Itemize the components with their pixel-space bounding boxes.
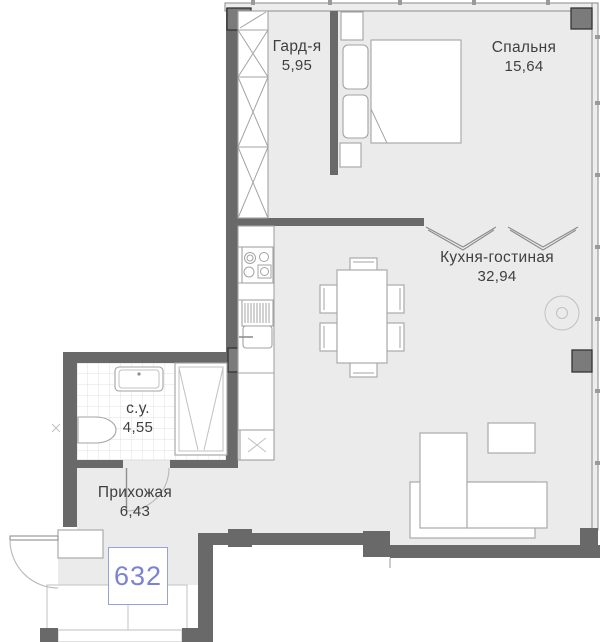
column-northeast [571,8,592,29]
room-area: 5,95 [273,56,322,75]
closet-body [238,11,268,218]
corridor-wall-strip [58,630,182,642]
top-window-band [225,3,598,11]
nightstand-bottom [340,143,361,167]
bathroom-south-wall-left [63,460,123,468]
pillow-2 [343,95,368,138]
bathroom-doorway-floor [123,460,170,468]
chair-bottom [350,362,377,377]
sofa-chaise [420,433,467,528]
room-area: 15,64 [492,57,556,76]
partition-gap-floor [421,218,592,226]
wardrobe-doorway-floor [330,175,338,218]
room-name: Кухня-гостиная [440,248,554,267]
corridor-wall-block-right [182,628,213,642]
south-wall [390,545,600,558]
room-name: Спальня [492,38,556,57]
bedroom-wardrobe-wall [330,11,338,175]
chair-right-1 [387,285,404,313]
chair-right-2 [387,323,404,351]
southeast-corner-block [580,528,598,546]
room-area: 6,43 [98,502,172,521]
west-wall [226,8,238,468]
right-window-band [592,3,598,530]
nightstand-top [341,12,363,40]
toilet [78,417,116,443]
column-east [572,350,592,372]
bathtub [175,363,227,455]
bathroom-south-wall-right [170,460,238,468]
room-area: 4,55 [123,418,153,437]
unit-number-badge: 632 [108,547,168,605]
washbasin [115,367,163,391]
unit-number: 632 [114,561,162,592]
sofa-seat [467,482,547,528]
room-name: Прихожая [98,483,172,502]
room-area: 32,94 [440,267,554,286]
room-label-hallway: Прихожая 6,43 [98,483,172,521]
room-label-kitchen-living: Кухня-гостиная 32,94 [440,248,554,286]
floor-plan-unit: Гард-я 5,95 Спальня 15,64 Кухня-гостиная… [0,0,600,642]
entry-cabinet [58,530,103,558]
chair-left-2 [320,323,337,351]
entry-door-frame-block [228,529,252,547]
room-label-bedroom: Спальня 15,64 [492,38,556,76]
bathroom-west-wall [63,363,77,527]
appliance-slot [240,430,274,460]
room-label-bathroom: с.у. 4,55 [123,399,153,437]
entry-door-swing-arc [10,540,58,588]
wardrobe-closet [238,11,268,218]
entry-south-wall [198,533,363,545]
shaft-x-mark [52,424,60,432]
kitchen-sink [239,300,273,348]
bed-blanket [371,40,461,143]
entry-east-wall [198,533,213,642]
stove [242,247,273,283]
room-name: Гард-я [273,37,322,56]
south-wall-block [363,531,390,557]
corridor-wall-block-left [40,628,58,642]
chair-left-1 [320,285,337,313]
room-name: с.у. [123,399,153,418]
coffee-table [488,423,535,453]
kitchen-counter [238,226,274,460]
pillow-1 [343,45,368,89]
entry-door-leaf [10,536,58,540]
bathroom-north-wall [63,352,238,363]
room-label-wardrobe: Гард-я 5,95 [273,37,322,75]
dining-table [337,270,387,363]
bedroom-kitchen-wall [238,218,424,226]
floor-plan-drawing [0,0,600,642]
